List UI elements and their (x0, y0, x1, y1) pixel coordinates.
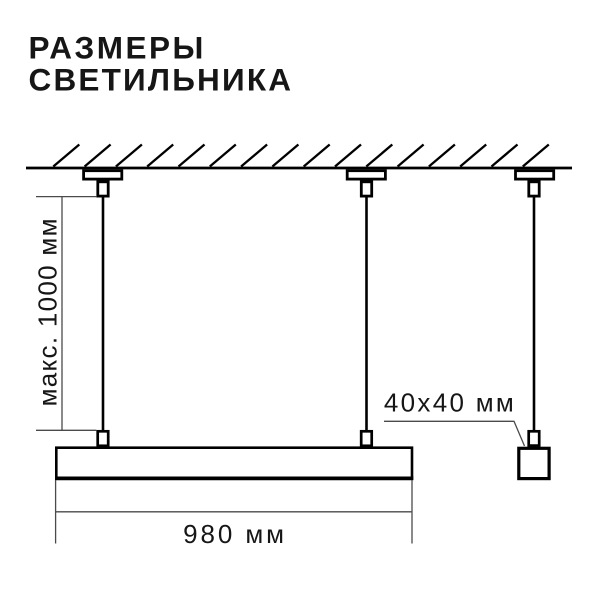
svg-text:СВЕТИЛЬНИКА: СВЕТИЛЬНИКА (29, 62, 294, 98)
svg-text:РАЗМЕРЫ: РАЗМЕРЫ (29, 30, 206, 66)
svg-text:макс. 1000 мм: макс. 1000 мм (33, 217, 63, 406)
svg-text:40x40 мм: 40x40 мм (384, 387, 516, 417)
svg-text:980 мм: 980 мм (183, 519, 287, 549)
